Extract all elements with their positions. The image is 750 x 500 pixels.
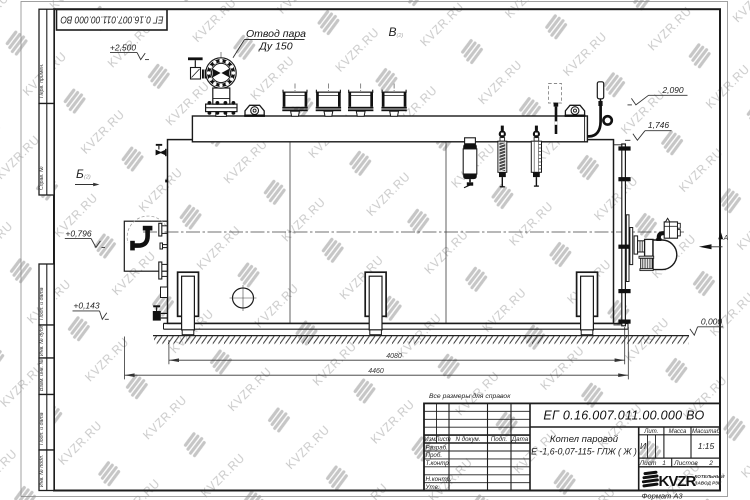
svg-text:ЗАВОД РЗП: ЗАВОД РЗП xyxy=(695,481,722,486)
svg-text:Утв.: Утв. xyxy=(425,484,440,491)
svg-text:Формат А3: Формат А3 xyxy=(641,491,683,500)
svg-text:N докум.: N докум. xyxy=(455,436,480,443)
svg-text:И: И xyxy=(640,441,647,451)
svg-text:+2,500: +2,500 xyxy=(110,42,137,52)
svg-text:Котел паровой: Котел паровой xyxy=(550,434,619,445)
svg-text:4080: 4080 xyxy=(386,353,402,360)
svg-text:А: А xyxy=(723,235,729,242)
svg-text:2: 2 xyxy=(708,460,713,467)
svg-text:Лист: Лист xyxy=(639,460,657,467)
svg-text:В: В xyxy=(389,25,397,39)
svg-text:Справ. №: Справ. № xyxy=(39,166,45,190)
svg-text:ЕГ 0.16.007.011.00.000 ВО: ЕГ 0.16.007.011.00.000 ВО xyxy=(543,409,704,423)
svg-text:Е -1,6-0,07-115- ГЛЖ ( Ж ): Е -1,6-0,07-115- ГЛЖ ( Ж ) xyxy=(531,447,637,457)
svg-text:+0,796: +0,796 xyxy=(65,228,92,238)
svg-text:KVZR: KVZR xyxy=(659,473,697,490)
svg-text:Дата: Дата xyxy=(511,436,529,443)
svg-text:1,746: 1,746 xyxy=(648,120,670,130)
svg-text:2,090: 2,090 xyxy=(661,85,684,95)
svg-text:Все размеры для справок: Все размеры для справок xyxy=(429,392,511,400)
svg-text:Б: Б xyxy=(76,167,84,181)
svg-text:Подп. и дата: Подп. и дата xyxy=(39,412,45,445)
svg-text:Подп. и дата: Подп. и дата xyxy=(39,287,45,320)
svg-text:Разраб.: Разраб. xyxy=(426,444,448,451)
svg-text:+0,143: +0,143 xyxy=(73,301,100,311)
svg-text:(2): (2) xyxy=(84,175,91,181)
svg-text:ЕГ 0.16.007.011.00.000 ВО: ЕГ 0.16.007.011.00.000 ВО xyxy=(61,13,164,25)
svg-text:Подп.: Подп. xyxy=(491,436,507,443)
svg-text:Масса: Масса xyxy=(669,429,687,435)
svg-text:(2): (2) xyxy=(397,33,404,39)
svg-text:0,000: 0,000 xyxy=(701,317,723,327)
svg-text:Листов: Листов xyxy=(673,460,698,467)
svg-text:4460: 4460 xyxy=(368,368,384,375)
svg-text:Взам. инв. №: Взам. инв. № xyxy=(39,359,45,391)
svg-text:Масштаб: Масштаб xyxy=(692,429,721,435)
svg-text:Инв. № подл.: Инв. № подл. xyxy=(39,455,45,487)
svg-text:Н.контр.: Н.контр. xyxy=(426,476,452,483)
svg-text:Перв. примен.: Перв. примен. xyxy=(39,64,45,98)
svg-text:Ду 150: Ду 150 xyxy=(258,41,292,53)
svg-text:Изм: Изм xyxy=(424,437,435,443)
svg-text:КОТЕЛЬНЫЙ: КОТЕЛЬНЫЙ xyxy=(695,472,726,479)
svg-text:Лист: Лист xyxy=(434,437,450,443)
svg-text:Проб.: Проб. xyxy=(426,452,443,459)
svg-text:Инв. № дубл.: Инв. № дубл. xyxy=(39,324,45,356)
svg-text:Отвод пара: Отвод пара xyxy=(246,28,306,40)
svg-text:1: 1 xyxy=(662,460,666,467)
svg-text:1:15: 1:15 xyxy=(698,441,715,451)
svg-text:Т.контр.: Т.контр. xyxy=(426,460,451,467)
svg-text:Лит.: Лит. xyxy=(643,429,658,435)
